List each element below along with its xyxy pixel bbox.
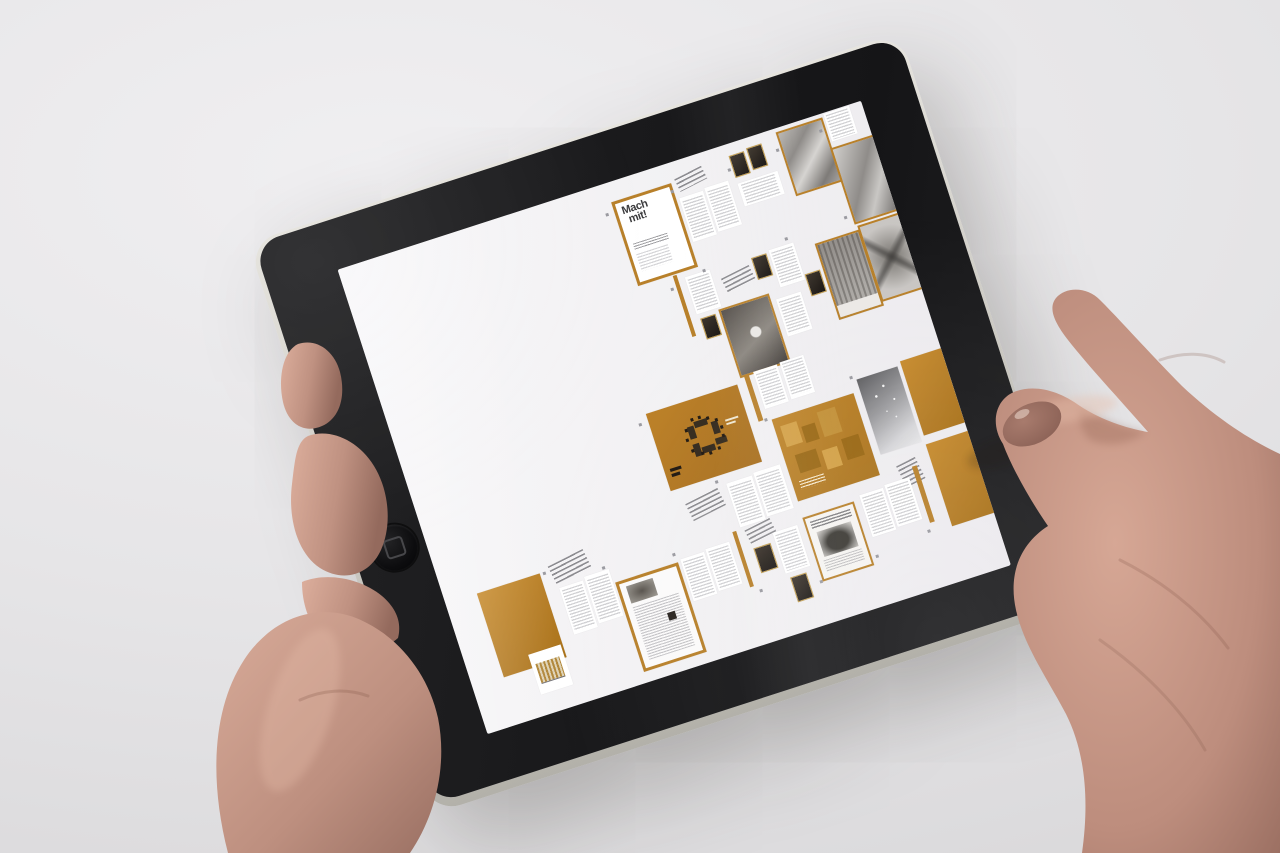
photo-scene: Machmit! (0, 0, 1280, 853)
hands-overlay (0, 0, 1280, 853)
knuckle-crease (1160, 354, 1224, 362)
left-index-fingertip (281, 342, 342, 428)
left-hand (216, 342, 441, 853)
left-middle-finger (291, 434, 388, 576)
right-hand (964, 290, 1280, 853)
